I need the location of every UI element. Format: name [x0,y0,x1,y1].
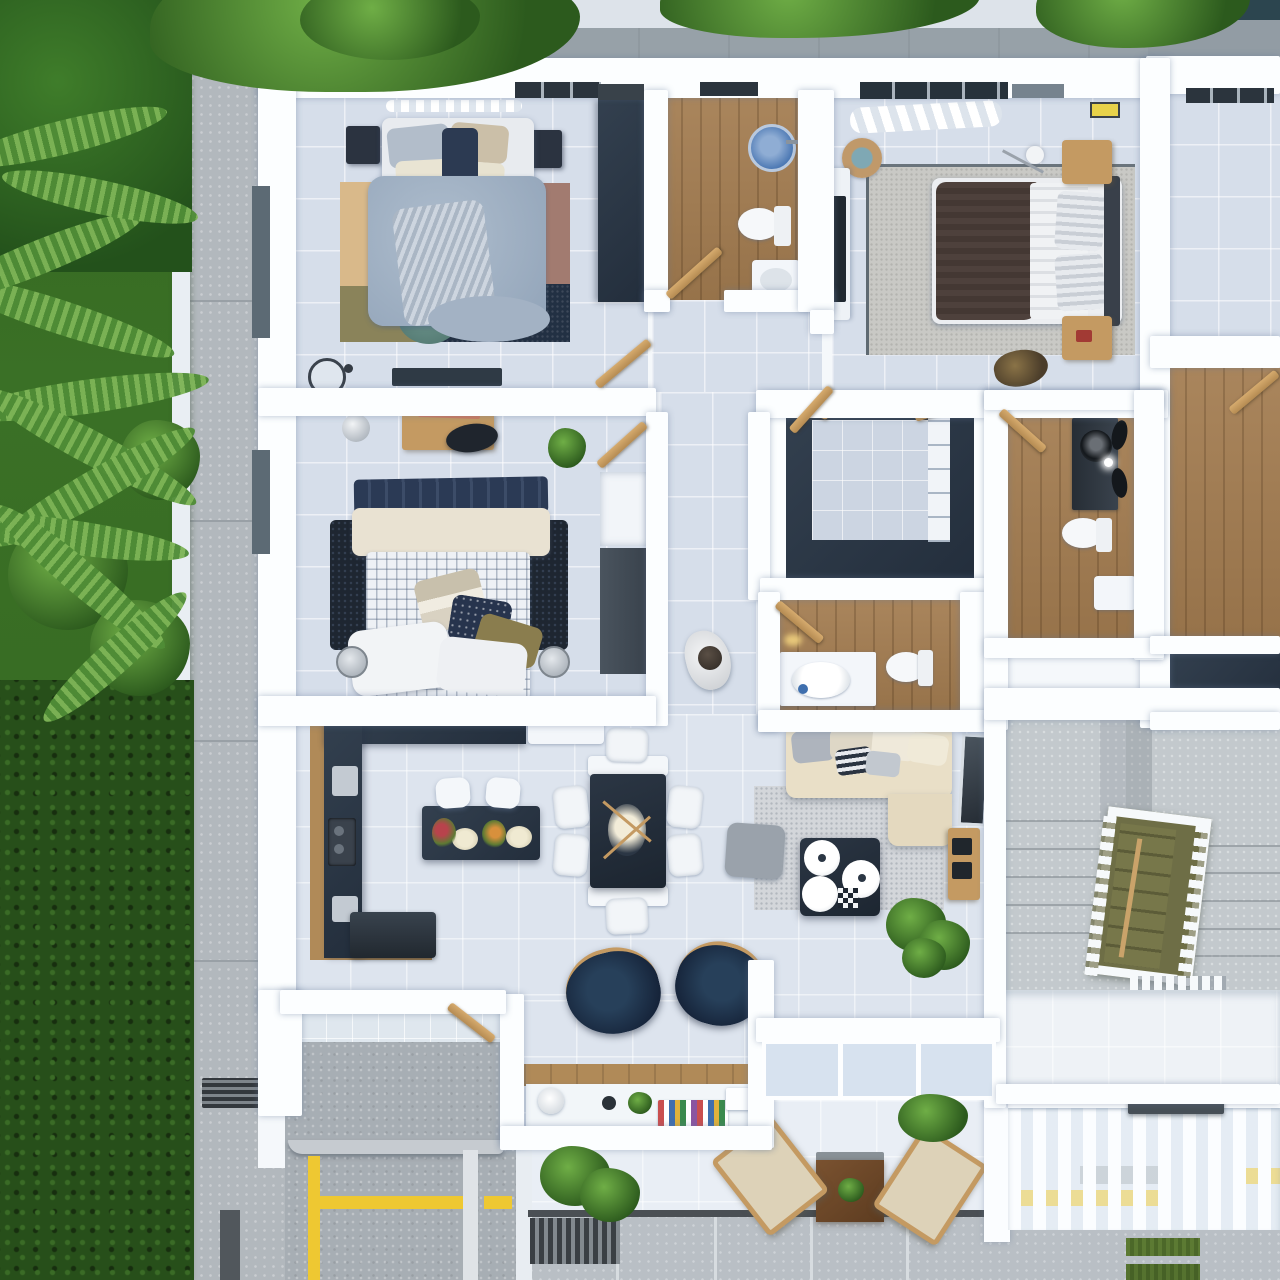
hedge-bottom [0,680,194,1280]
kitchen-cooktop [328,818,356,866]
terrace-glass-mullion-1 [838,1042,843,1098]
floor-plan-render [0,0,1280,1280]
window-shade-gray [1012,84,1064,98]
wall-neighbor-h1 [1150,336,1280,368]
dining-chair-left-2 [552,833,590,878]
window-bedroom2 [860,82,1008,99]
hall-upper-floor [652,300,822,392]
bedroom2-brown-blanket [936,182,1038,320]
living-tray-dot2 [858,874,866,882]
living-speaker-1 [952,838,972,855]
bedroom2-pillow-top [1054,190,1106,251]
bedroom1-duvet-drape [428,296,550,342]
vent-yellow [1090,102,1120,118]
study-desk-wood-band [524,1064,752,1086]
bathroom1-toilet-tank [774,206,791,246]
bedroom1-nightstand-left [346,126,380,164]
dining-chair-top [605,727,648,762]
terrace-glass-door [762,1040,996,1100]
living-tray-2 [802,876,838,912]
bathroom1-vanity-basin [760,268,792,292]
ac-unit-roof [598,84,644,100]
bathroom2-faucet-dot [798,684,808,694]
closet-inner-floor [812,420,934,540]
window-bathroom1 [700,82,758,96]
bedroom3-floor-lamp-right [538,646,570,678]
bedroom3-niche [600,472,648,546]
bathroom3-toilet-tank [1096,518,1112,552]
bathroom1-round-sink [748,124,796,172]
living-checkerboard [838,888,858,908]
stairs-step-line [1188,928,1280,930]
wall-bath3-bottom [984,638,1164,658]
kitchen-fridge [350,912,436,958]
wall-studynook-left [500,994,524,1146]
wall-bedroom2-west-stub [810,310,834,334]
bedroom3-floor-lamp-left [336,646,368,678]
parking-concrete [285,1042,520,1280]
closet-shelf-column [928,418,950,542]
stairs-step-line [1000,876,1104,878]
bathroom3-white-cabinet [1094,576,1136,610]
bedroom2-nightstand-book [1076,330,1092,342]
bedroom2-headboard [1104,176,1120,326]
parking-yellow-line-vertical [308,1156,320,1280]
study-desk-cup [602,1096,616,1110]
grass-strip-2 [1126,1264,1200,1280]
wall-bath2-bottom [758,710,988,732]
living-speaker-2 [952,862,972,879]
fence-louvers [1008,1104,1280,1230]
bedroom3-headband-cream [352,508,550,556]
bedroom1-tv-console [392,368,502,386]
wall-neighbor-h3 [1150,712,1280,730]
terrace-grate [530,1218,620,1264]
sidewalk-joint-3 [810,1212,813,1280]
bedroom1-wardrobe [598,100,648,302]
wall-bath3-east [1134,390,1164,660]
neighbor-bedroom-floor [1166,92,1280,340]
wall-bedroom3-bottom [258,696,656,726]
living-sofa-chaise [888,794,952,846]
bedroom2-floor-lamp-shade [1026,146,1044,164]
wall-closet-bottom [760,578,990,600]
dining-chair-right-1 [666,784,704,829]
parking-yellow-line-horizontal [320,1196,464,1209]
wall-landing-bottom [996,1084,1280,1104]
kitchen-cooktop-burner2 [334,844,344,854]
grass-strip-1 [1126,1238,1200,1256]
window-bedroom1 [515,82,601,98]
bedroom1-curtain [386,100,522,112]
study-desk-lamp [538,1088,564,1114]
bedroom1-mirror-dot [344,364,353,373]
wall-bedroom1-bath1 [644,90,668,312]
wall-bath1-bedroom2 [798,90,834,312]
dining-chair-bottom [605,897,649,935]
bedroom2-nightstand-top [1062,140,1112,184]
stairs-step-line [1000,820,1104,822]
terrace-glass-mullion-2 [916,1042,921,1098]
window-neighbor [1186,88,1274,103]
kitchen-island-plate2 [506,826,532,848]
bathroom2-wall-lamp-glow [784,634,802,646]
wall-terrace-top [756,1018,1000,1042]
stairs-landing [996,990,1280,1090]
bedroom2-pillow-bottom [1054,252,1106,311]
stairs-step-line [1000,848,1104,850]
wall-hall-west [646,412,668,726]
kitchen-bar-stool-2 [485,777,521,810]
bedroom3-pillow-white-small [435,636,528,699]
bedroom3-wardrobe-dark [600,548,648,674]
wall-laundry-top [280,990,506,1014]
living-tray-dot1 [818,854,826,862]
stairs-step-line [1188,955,1280,957]
dining-chair-left-1 [552,784,590,829]
stairs-bottom-platform [1130,976,1226,990]
left-wall-window-recess-1 [252,186,270,338]
terrace-right-wall [984,1100,1010,1242]
living-cushion-gray [790,728,835,764]
kitchen-island-flowers2 [482,820,506,848]
left-wall-window-recess-2 [252,450,270,554]
wall-closet-bath3 [984,390,1008,730]
dining-chair-right-2 [666,833,704,878]
kitchen-bar-stool-1 [435,777,471,809]
parking-white-divider [463,1150,478,1280]
kitchen-cooktop-burner1 [334,826,344,836]
bathroom2-toilet-tank [918,650,933,686]
bedroom3-decor-sphere [342,414,370,442]
stairs-top-shade-2 [1126,720,1152,822]
study-book-row [658,1100,728,1127]
living-pouf [724,822,786,880]
person-head [698,646,722,670]
wall-h-main-left [258,388,656,416]
wall-neighbor-h2 [1150,636,1280,654]
parking-yellow-line-stub [484,1196,512,1209]
walkway-pillar [220,1210,240,1280]
bathroom3-faucet-sparkle [1104,458,1113,467]
kitchen-island-flowers1 [432,818,456,848]
kitchen-sink [332,766,358,796]
neighbor-wood-room-floor [1166,368,1280,642]
sidewalk-joint-2 [714,1212,717,1280]
wall-hall-east [748,412,770,600]
living-cushion-white [906,731,950,767]
wall-studynook-bottom [500,1126,772,1150]
living-pillow-gray [865,750,901,777]
stairs-step-line [1000,904,1104,906]
